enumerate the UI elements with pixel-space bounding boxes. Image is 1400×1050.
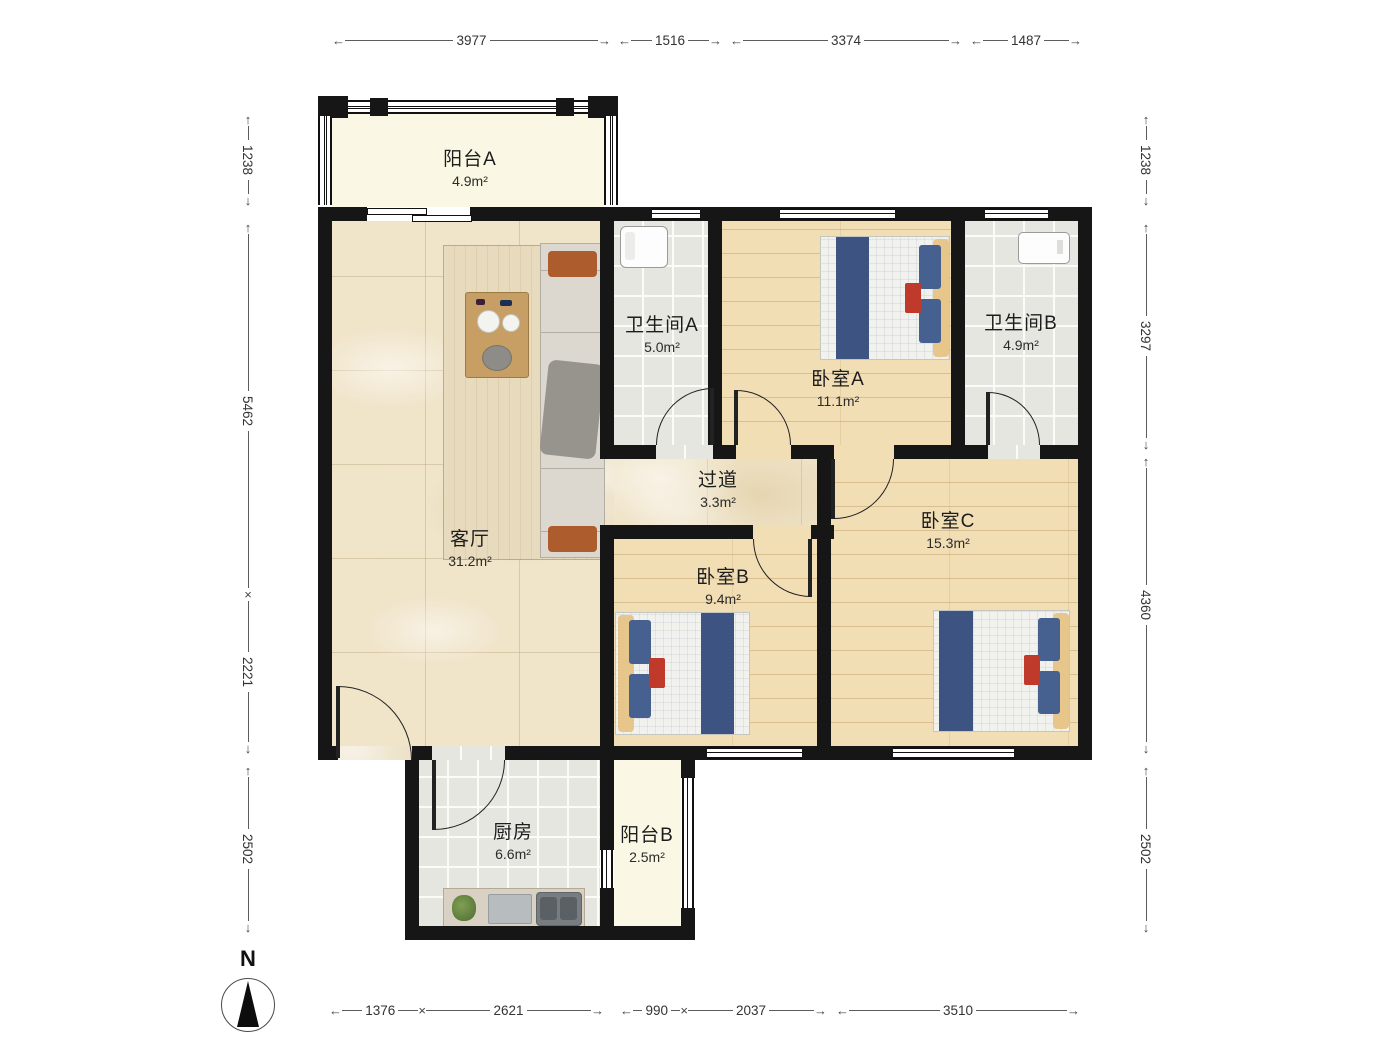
wall [1078,221,1092,760]
dim-bottom-1: ←1376× [329,1002,426,1018]
room-name: 卧室C [921,506,976,533]
room-label-bathroom-a: 卫生间A 5.0m² [625,310,699,355]
wall [894,445,988,459]
room-label-kitchen: 厨房 6.6m² [493,817,533,862]
window [682,778,694,908]
room-area: 4.9m² [443,173,497,189]
table-item [476,299,485,305]
room-name: 客厅 [448,524,492,551]
window [893,747,1014,759]
wall [318,207,367,221]
room-name: 厨房 [493,817,533,844]
compass: N [208,946,288,1041]
coffee-table [465,292,529,378]
dim-top-1: ←3977→ [332,32,611,48]
dim-left-3: 2221↓ [240,601,256,755]
wall [600,760,614,850]
window [780,208,895,220]
bed-bedroom-b [615,612,750,735]
room-name: 阳台A [443,144,497,171]
plate [477,310,500,333]
bed-runner [701,613,734,734]
room-label-bedroom-a: 卧室A 11.1m² [811,364,865,409]
dim-bottom-4: 2037→ [688,1002,827,1018]
room-label-bathroom-b: 卫生间B 4.9m² [984,308,1058,353]
door-leaf-bedroom-a [734,390,738,445]
sink-basin [540,897,557,920]
wall [614,525,753,539]
room-area: 11.1m² [811,393,865,409]
dim-right-4: ↑2502↓ [1138,764,1154,934]
bed-red-pillow [905,283,921,313]
bed-bedroom-a [820,236,950,360]
wall [681,908,695,926]
sofa-pillow [548,251,597,277]
room-name: 卫生间A [625,310,699,337]
bed-pillow [919,299,941,343]
plant [452,895,476,921]
room-name: 卧室A [811,364,865,391]
bed-red-pillow [1024,655,1040,685]
room-area: 9.4m² [696,591,750,607]
sofa-pillow [548,526,597,552]
bed-pillow [629,620,651,664]
bed-runner [836,237,869,359]
window [574,100,588,114]
window [604,116,618,205]
dim-bottom-2: 2621→ [426,1002,604,1018]
wall [951,221,965,445]
dim-right-2: ↑3297↓ [1138,221,1154,451]
kitchen-sink [536,892,582,926]
kitchen-counter [443,888,585,928]
room-name: 过道 [698,465,738,492]
room-area: 31.2m² [448,553,492,569]
balcony-post [556,98,574,116]
dim-right-1: ↑1238↓ [1138,113,1154,207]
bed-bedroom-c [933,610,1070,732]
room-label-bedroom-c: 卧室C 15.3m² [921,506,976,551]
table-decor [482,345,512,371]
floor-kitchen-opening [432,746,505,760]
wall [600,221,614,459]
floor-bath-b-opening [988,445,1040,459]
washbasin-bathroom-b [1018,232,1070,264]
dim-top-3: ←3374→ [730,32,962,48]
sofa-seam [541,332,604,333]
dim-top-2: ←1516→ [618,32,722,48]
wall [681,760,695,778]
room-area: 4.9m² [984,337,1058,353]
door-leaf-bathroom-a [710,388,714,445]
dim-right-3: ↑4360↓ [1138,455,1154,755]
room-area: 2.5m² [620,849,674,865]
door-leaf-bedroom-b [808,539,812,597]
cutting-board [488,894,532,924]
dim-left-4: ↑2502↓ [240,764,256,934]
balcony-post [370,98,388,116]
room-name: 卫生间B [984,308,1058,335]
room-label-bedroom-b: 卧室B 9.4m² [696,562,750,607]
window [348,100,370,114]
room-area: 5.0m² [625,339,699,355]
wall [318,746,338,760]
bed-runner [939,611,973,731]
room-label-hallway: 过道 3.3m² [698,465,738,510]
table-item [500,300,512,306]
dim-bottom-3: ←990× [620,1002,688,1018]
washbasin-detail [625,232,635,260]
window [388,100,556,114]
sliding-door [367,208,427,215]
room-label-living-room: 客厅 31.2m² [448,524,492,569]
wall [817,459,831,746]
bed-pillow [1038,618,1060,661]
balcony-post [588,96,618,118]
window [601,850,613,888]
room-area: 3.3m² [698,494,738,510]
window [707,747,802,759]
bed-pillow [629,674,651,718]
window [318,116,332,205]
window [985,208,1048,220]
bed-pillow [919,245,941,289]
door-leaf-entry [336,686,340,758]
compass-north-label: N [208,946,288,972]
wall [600,525,614,746]
room-label-balcony-a: 阳台A 4.9m² [443,144,497,189]
wall [791,445,834,459]
room-area: 6.6m² [493,846,533,862]
balcony-post [318,96,348,118]
wall [405,926,695,940]
door-leaf-bedroom-c [831,459,835,519]
sofa-throw [539,359,605,459]
floor-plan: 阳台A 4.9m² 卫生间A 5.0m² 卧室A 11.1m² 卫生间B 4.9… [0,0,1400,1050]
room-label-balcony-b: 阳台B 2.5m² [620,820,674,865]
room-area: 15.3m² [921,535,976,551]
floor-bed-b-opening [753,525,811,539]
sliding-door [412,215,472,222]
bed-pillow [1038,671,1060,714]
floor-bath-a-opening [656,445,713,459]
floor-bed-c-opening [834,445,894,459]
compass-arrow-icon [237,981,259,1027]
bed-red-pillow [649,658,665,688]
dim-left-1: ↑1238↓ [240,113,256,207]
door-leaf-bathroom-b [986,392,990,445]
door-leaf-kitchen [432,760,436,830]
wall [600,888,614,926]
room-name: 卧室B [696,562,750,589]
sink-basin [560,897,577,920]
wall [1040,445,1092,459]
dim-bottom-5: ←3510→ [836,1002,1080,1018]
wall [412,746,432,760]
plate [502,314,520,332]
window [652,208,700,220]
wall [713,445,736,459]
dim-left-2: ↑5462× [240,221,256,601]
dim-top-4: ←1487→ [970,32,1082,48]
sofa-seam [541,468,604,469]
washbasin-bathroom-a [620,226,668,268]
sofa [540,243,605,558]
washbasin-detail [1057,240,1063,254]
wall [405,760,419,926]
room-name: 阳台B [620,820,674,847]
wall [318,221,332,760]
floor-bed-a-opening [736,445,791,459]
